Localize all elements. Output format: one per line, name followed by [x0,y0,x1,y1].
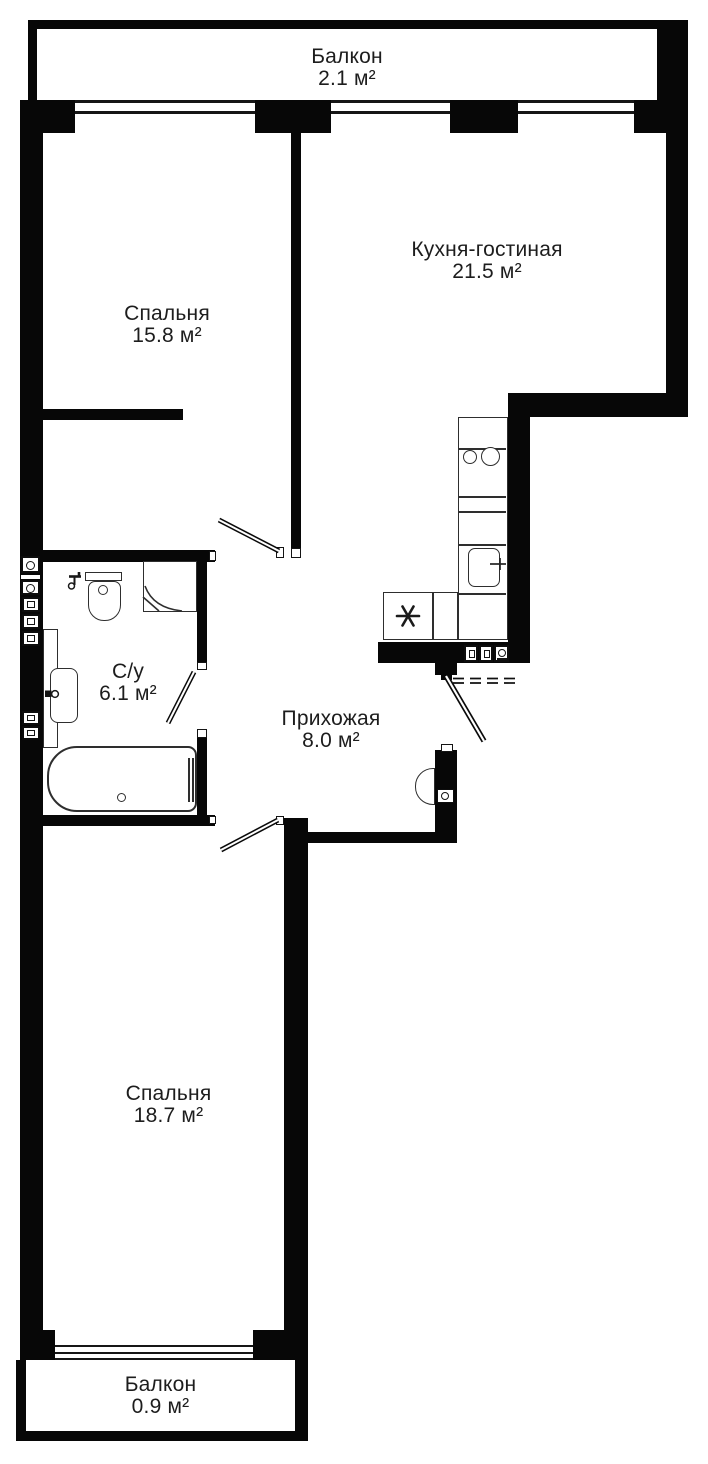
shower-icon [143,561,197,612]
riser-shaft-icon [21,556,40,573]
room-name: Балкон [37,46,657,68]
faucet-icon [69,572,82,589]
toilet-tank-icon [85,572,122,581]
room-label-kitchen-living: Кухня-гостиная 21.5 м² [301,239,673,283]
door-leaf-bedroom2 [221,820,278,850]
floor-plan: Балкон 2.1 м² Спальня 15.8 м² Кухня-гост… [0,0,708,1464]
door-jamb [209,816,216,824]
room-name: Кухня-гостиная [301,239,673,261]
washer-outlet-icon [494,645,509,662]
room-name: Прихожая [231,708,431,730]
entry-door-hinge-block [441,675,452,680]
entry-door-threshold [435,642,457,675]
riser-gap [21,575,40,579]
wall-balcony2-left [16,1360,26,1441]
room-name: Спальня [48,1083,289,1105]
room-area: 21.5 м² [301,261,673,283]
room-area: 15.8 м² [43,325,291,347]
wall-pier [20,1330,55,1360]
wall-bedroom1-kitchen-divider [291,133,301,558]
window-glazing [20,100,688,103]
room-label-bathroom: С/у 6.1 м² [51,661,205,705]
wall-hallway-bottom [307,832,457,843]
room-label-bedroom1: Спальня 15.8 м² [43,303,291,347]
wall-balcony-left [28,20,37,100]
hob-icon [481,447,500,466]
wall-kitchen-right [508,393,530,663]
door-jamb [276,816,284,825]
vent-shaft-icon [479,645,493,662]
wall-balcony2-right [295,1360,308,1441]
door-jamb [197,729,207,738]
door-jamb [276,547,284,558]
wall-bathroom-right-upper [197,558,207,662]
wall-bedroom1-niche-stub [43,409,183,420]
intercom-icon [415,768,435,805]
door-leaf-bedroom1 [219,520,279,551]
kitchen-sink-icon [468,548,500,587]
wall-balcony2-bottom [16,1431,308,1441]
vent-shaft-icon [22,597,40,612]
wall-balcony-top [28,20,688,29]
vent-shaft-icon [464,645,478,662]
room-area: 0.9 м² [26,1396,295,1418]
window-glazing [20,111,688,114]
room-area: 8.0 м² [231,730,431,752]
wall-bathroom-right-lower [197,737,207,815]
wall-kitchen-top-right [508,393,688,417]
room-label-bedroom2: Спальня 18.7 м² [48,1083,289,1127]
wall-end-cap [291,548,301,558]
wall-end-cap [441,744,453,752]
riser-shaft-icon [21,580,40,595]
bathtub-icon [47,746,197,812]
wall-pier [255,100,331,133]
vent-shaft-icon [22,726,40,740]
room-name: Балкон [26,1374,295,1396]
door-swing-dashed [453,679,521,684]
hob-icon [463,450,477,464]
room-label-balcony-bottom: Балкон 0.9 м² [26,1374,295,1418]
room-area: 2.1 м² [37,68,657,90]
doorbell-icon [437,789,454,803]
vent-shaft-icon [22,614,40,629]
room-name: С/у [51,661,205,683]
entry-door-leaf [446,676,484,741]
room-area: 6.1 м² [51,683,205,705]
room-name: Спальня [43,303,291,325]
room-label-hallway: Прихожая 8.0 м² [231,708,431,752]
wall-bathroom-bottom [20,815,215,826]
kitchen-cabinet [433,592,458,640]
wall-balcony-right [657,20,688,100]
room-area: 18.7 м² [48,1105,289,1127]
toilet-icon [88,581,121,621]
wall-pier [450,100,518,133]
room-label-balcony-top: Балкон 2.1 м² [37,46,657,90]
wall-pier [253,1330,308,1360]
vent-shaft-icon [22,711,40,725]
vent-shaft-icon [22,631,40,646]
fridge-icon [383,592,433,640]
door-jamb [209,551,216,561]
